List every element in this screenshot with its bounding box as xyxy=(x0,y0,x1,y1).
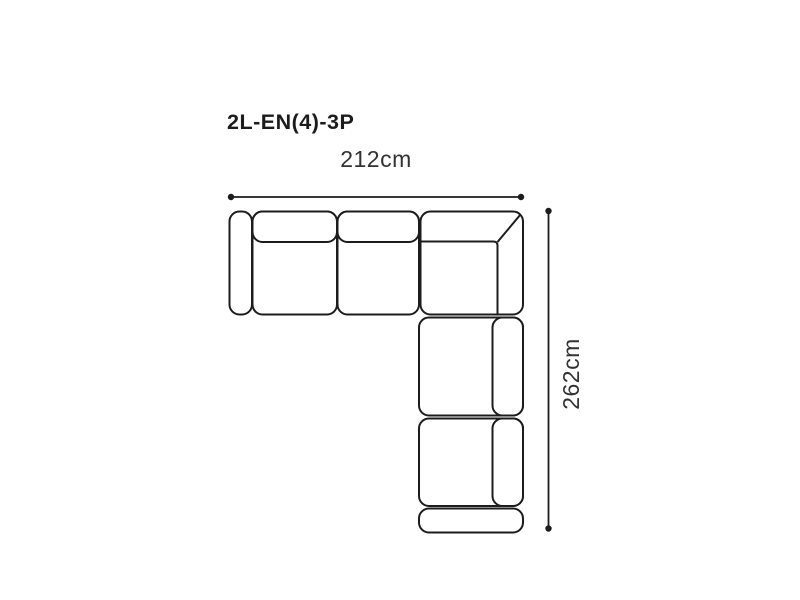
chaise-seat-1-back-cushion xyxy=(493,318,524,416)
chaise-seat-2-back-cushion xyxy=(493,419,524,507)
width-dimension-label: 212cm xyxy=(340,146,412,172)
height-dimension-label: 262cm xyxy=(558,338,584,410)
width-dimension-left-endpoint-dot xyxy=(228,194,234,200)
seat-2-back-cushion xyxy=(338,212,420,243)
height-dimension-bottom-endpoint-dot xyxy=(545,525,551,531)
sofa-outline xyxy=(230,212,524,533)
width-dimension-right-endpoint-dot xyxy=(518,194,524,200)
width-dimension: 212cm xyxy=(228,146,524,200)
left-armrest xyxy=(230,212,253,315)
sofa-dimension-diagram: 2L-EN(4)-3P 212cm 262cm xyxy=(0,0,800,600)
corner-unit xyxy=(421,212,524,315)
height-dimension-top-endpoint-dot xyxy=(545,208,551,214)
height-dimension: 262cm xyxy=(545,208,584,532)
seat-1-back-cushion xyxy=(253,212,338,243)
sofa-diagram-svg: 2L-EN(4)-3P 212cm 262cm xyxy=(0,0,800,600)
model-title: 2L-EN(4)-3P xyxy=(227,110,354,134)
bottom-armrest xyxy=(419,509,523,533)
